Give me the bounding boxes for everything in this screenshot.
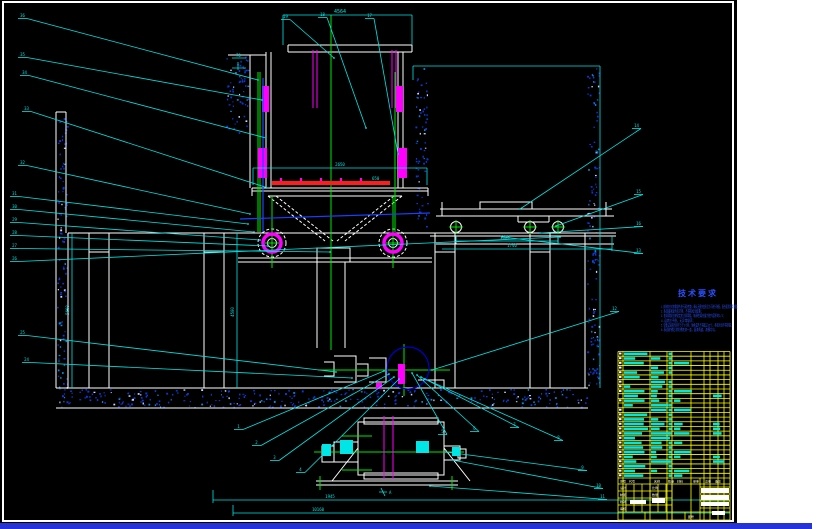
bom-seq-mark <box>619 381 622 383</box>
bom-seq-mark <box>619 362 622 364</box>
bom-material-text <box>674 427 680 430</box>
hatch-dot <box>243 91 244 92</box>
hatch-dot <box>142 400 144 402</box>
hatch-dot <box>226 396 227 397</box>
hatch-dot <box>63 241 65 243</box>
hatch-dot <box>62 241 63 243</box>
hatch-dot <box>110 389 112 390</box>
hatch-dot <box>417 93 419 95</box>
hatch-dot <box>237 99 239 101</box>
hatch-dot <box>86 396 88 397</box>
hatch-dot <box>331 401 333 402</box>
bottom-edge-bar <box>0 523 812 529</box>
hatch-dot <box>64 143 65 144</box>
hatch-dot <box>60 154 61 156</box>
hatch-dot <box>99 393 101 395</box>
hatch-dot <box>118 406 119 407</box>
bom-seq-mark <box>619 413 622 415</box>
hatch-dot <box>280 405 281 407</box>
hatch-dot <box>566 397 568 398</box>
dim-trolley: 2650 <box>335 162 345 167</box>
callout-label: 29 <box>12 217 17 222</box>
bom-code-text <box>624 442 642 445</box>
hatch-dot <box>426 161 427 163</box>
callout-target-dot <box>265 137 267 139</box>
bom-qty-text <box>669 460 672 463</box>
hatch-dot <box>481 391 483 392</box>
hatch-dot <box>244 78 245 79</box>
hatch-dot <box>166 393 168 395</box>
callout-target-dot <box>559 236 561 238</box>
bom-qty-text <box>669 399 672 402</box>
hatch-dot <box>408 390 410 391</box>
bom-code-text <box>624 470 635 473</box>
hatch-dot <box>492 404 494 405</box>
callout-target-dot <box>539 232 541 234</box>
hatch-dot <box>522 398 523 400</box>
hatch-dot <box>202 396 203 398</box>
hatch-dot <box>398 393 400 394</box>
hatch-dot <box>60 346 61 348</box>
bom-seq-mark <box>619 446 622 448</box>
hatch-dot <box>57 219 59 220</box>
hatch-dot <box>327 398 328 399</box>
hatch-dot <box>422 205 424 206</box>
hatch-dot <box>506 401 507 403</box>
hatch-dot <box>366 393 367 394</box>
hatch-dot <box>246 60 247 62</box>
hatch-dot <box>426 83 427 84</box>
hatch-dot <box>538 401 540 403</box>
bom-code-text <box>624 376 640 379</box>
hatch-dot <box>270 395 271 397</box>
hatch-dot <box>62 283 64 285</box>
bom-material-text <box>674 432 690 435</box>
hatch-dot <box>596 112 598 114</box>
hatch-dot <box>597 99 599 100</box>
hatch-dot <box>184 396 185 397</box>
hatch-dot <box>597 344 598 346</box>
hatch-dot <box>128 404 130 405</box>
hatch-dot <box>239 394 241 396</box>
hatch-dot <box>590 95 592 97</box>
hatch-dot <box>225 390 227 392</box>
hatch-dot <box>588 169 590 171</box>
bom-code-text <box>624 460 636 463</box>
hatch-dot <box>113 404 115 406</box>
hatch-dot <box>219 400 221 401</box>
hatch-dot <box>424 129 426 131</box>
bom-code-text <box>624 437 635 440</box>
hatch-dot <box>589 308 590 310</box>
bom-qty-text <box>669 470 672 473</box>
hatch-dot <box>592 344 594 345</box>
bom-header-cell: 单重 <box>693 479 699 484</box>
hatch-dot <box>418 176 419 177</box>
hatch-dot <box>222 396 223 398</box>
callout-label: 15 <box>636 189 641 194</box>
hatch-dot <box>120 404 122 405</box>
hatch-dot <box>159 400 161 402</box>
hatch-dot <box>492 397 493 398</box>
hatch-dot <box>566 389 568 390</box>
hatch-dot <box>134 393 135 394</box>
hatch-dot <box>350 399 352 400</box>
hatch-dot <box>345 393 346 394</box>
hatch-dot <box>507 400 509 402</box>
bom-qty-text <box>669 423 672 426</box>
hatch-dot <box>425 142 426 144</box>
hatch-dot <box>394 396 396 397</box>
hatch-dot <box>415 127 417 129</box>
hatch-dot <box>586 398 587 399</box>
hatch-dot <box>323 405 325 406</box>
hatch-dot <box>596 271 597 273</box>
hatch-dot <box>426 107 427 109</box>
hatch-dot <box>594 332 595 333</box>
hatch-dot <box>424 218 426 220</box>
hatch-dot <box>524 396 525 398</box>
bom-material-text <box>674 456 680 459</box>
hatch-dot <box>62 395 64 397</box>
bom-name-text <box>651 442 662 445</box>
hatch-dot <box>210 406 211 407</box>
bom-qty-text <box>669 385 672 388</box>
hatch-dot <box>189 406 190 407</box>
hatch-dot <box>60 294 62 295</box>
bom-seq-mark <box>619 357 622 359</box>
hatch-dot <box>594 311 596 312</box>
hatch-dot <box>61 214 63 215</box>
hatch-dot <box>407 405 409 407</box>
hatch-dot <box>292 404 293 406</box>
hatch-dot <box>223 407 224 408</box>
hatch-dot <box>128 393 130 395</box>
hatch-dot <box>592 74 593 76</box>
hatch-dot <box>230 90 232 92</box>
callout-label: 24 <box>24 357 29 362</box>
bom-remark-text <box>713 460 724 463</box>
hatch-dot <box>271 390 273 391</box>
hatch-dot <box>58 143 60 144</box>
hatch-dot <box>545 389 547 391</box>
hatch-dot <box>364 391 365 393</box>
hatch-dot <box>65 263 66 265</box>
hatch-dot <box>238 405 240 406</box>
hatch-dot <box>420 212 422 213</box>
bom-code-text <box>624 446 643 449</box>
hatch-dot <box>221 391 222 392</box>
hatch-dot <box>237 403 238 404</box>
bom-code-text <box>624 399 645 402</box>
hatch-dot <box>587 230 589 231</box>
hatch-dot <box>64 358 66 360</box>
hatch-dot <box>247 105 248 107</box>
hatch-dot <box>589 238 591 240</box>
hatch-dot <box>247 99 248 101</box>
hatch-dot <box>314 396 315 397</box>
hatch-dot <box>149 404 151 406</box>
hatch-dot <box>239 76 240 78</box>
hatch-dot <box>89 396 90 398</box>
hatch-dot <box>578 402 580 403</box>
bom-qty-text <box>669 413 672 416</box>
hatch-dot <box>63 168 64 170</box>
hatch-dot <box>57 307 59 309</box>
hatch-dot <box>231 97 232 99</box>
hatch-dot <box>514 389 515 391</box>
hatch-dot <box>243 66 244 68</box>
callout-target-dot <box>424 378 426 380</box>
hatch-dot <box>64 148 66 149</box>
hatch-dot <box>155 390 157 392</box>
callout-target-dot <box>365 127 367 129</box>
hatch-dot <box>291 402 292 403</box>
hatch-dot <box>493 403 494 404</box>
bom-name-text <box>651 437 670 440</box>
bom-seq-mark <box>619 409 622 411</box>
hatch-dot <box>417 78 419 80</box>
hatch-dot <box>596 68 597 69</box>
bom-name-text <box>651 357 660 360</box>
hatch-dot <box>321 399 323 401</box>
hatch-dot <box>420 112 421 114</box>
callout-target-dot <box>420 376 422 378</box>
bom-material-text <box>674 442 682 445</box>
callout-target-dot <box>257 79 259 81</box>
hatch-dot <box>334 400 335 402</box>
hatch-dot <box>421 84 423 86</box>
hatch-dot <box>593 337 594 338</box>
hatch-dot <box>595 104 596 106</box>
hatch-dot <box>129 405 131 407</box>
hatch-dot <box>186 394 188 396</box>
hatch-dot <box>64 365 65 367</box>
hatch-dot <box>598 264 599 266</box>
hatch-dot <box>250 400 252 402</box>
hatch-dot <box>211 404 212 405</box>
hatch-dot <box>228 95 229 96</box>
hatch-dot <box>377 396 379 398</box>
hatch-dot <box>416 161 418 162</box>
callout-target-dot <box>416 374 418 376</box>
hatch-dot <box>293 392 295 394</box>
hatch-dot <box>549 399 551 401</box>
hatch-dot <box>233 87 234 88</box>
hatch-dot <box>207 402 208 404</box>
hatch-dot <box>474 397 476 398</box>
hatch-dot <box>336 399 338 400</box>
callout-target-dot <box>445 451 447 453</box>
hatch-dot <box>423 163 425 165</box>
callout-label: 32 <box>20 160 25 165</box>
hatch-dot <box>418 169 420 170</box>
callout-label: 11 <box>600 494 605 499</box>
hatch-dot <box>596 259 597 260</box>
hatch-dot <box>60 292 62 294</box>
bom-remark-text <box>713 423 720 426</box>
hatch-dot <box>229 397 230 399</box>
hatch-dot <box>61 321 62 323</box>
hatch-dot <box>589 144 591 145</box>
bom-seq-mark <box>619 418 622 420</box>
hatch-dot <box>440 389 442 391</box>
bom-qty-text <box>669 442 672 445</box>
hatch-dot <box>284 405 285 407</box>
hatch-dot <box>596 192 598 193</box>
hatch-dot <box>65 331 66 332</box>
callout-target-dot <box>451 459 453 461</box>
hatch-dot <box>172 394 173 396</box>
bom-qty-text <box>669 446 672 449</box>
hatch-dot <box>364 406 365 408</box>
bom-header-cell: 名称 <box>654 479 660 484</box>
hatch-dot <box>504 392 506 393</box>
hatch-dot <box>95 397 97 398</box>
hatch-dot <box>62 139 63 141</box>
hatch-dot <box>424 133 426 134</box>
hatch-dot <box>242 81 244 83</box>
hatch-dot <box>82 390 83 392</box>
hatch-dot <box>591 146 593 148</box>
hatch-dot <box>409 392 410 393</box>
hatch-dot <box>240 101 242 103</box>
cad-drawing: 4564 2650 650 1125 1740 1945 10160 5600 … <box>0 0 819 529</box>
hatch-dot <box>234 403 235 404</box>
hatch-dot <box>119 399 121 401</box>
hatch-dot <box>184 389 186 390</box>
hatch-dot <box>597 368 599 370</box>
callout-label: 12 <box>612 306 617 311</box>
hatch-dot <box>528 389 529 391</box>
bom-seq-mark <box>619 470 622 472</box>
bom-seq-mark <box>619 367 622 369</box>
hatch-dot <box>503 400 504 402</box>
callout-target-dot <box>247 223 249 225</box>
hatch-dot <box>63 401 64 403</box>
hatch-dot <box>510 389 512 390</box>
hatch-dot <box>155 404 156 406</box>
callout-target-dot <box>397 153 399 155</box>
hatch-dot <box>533 401 535 403</box>
hatch-dot <box>392 391 394 392</box>
bom-seq-mark <box>619 399 622 401</box>
hatch-dot <box>598 86 599 88</box>
hatch-dot <box>529 395 531 396</box>
bom-qty-text <box>669 418 672 421</box>
bom-name-text <box>651 390 658 393</box>
hatch-dot <box>596 151 598 152</box>
hatch-dot <box>233 106 234 108</box>
hatch-dot <box>329 399 331 400</box>
hatch-dot <box>596 186 597 187</box>
bom-seq-mark <box>619 451 622 453</box>
hatch-dot <box>471 397 473 399</box>
hatch-dot <box>596 372 598 374</box>
bom-qty-text <box>669 465 672 468</box>
hatch-dot <box>290 396 291 397</box>
hatch-dot <box>357 399 359 400</box>
hatch-dot <box>64 389 65 390</box>
hatch-dot <box>239 116 241 118</box>
hatch-dot <box>227 99 228 101</box>
callout-label: 10 <box>596 483 601 488</box>
bom-code-text <box>624 395 638 398</box>
bom-qty-text <box>669 451 672 454</box>
callout-label: 26 <box>12 256 17 261</box>
dim-pit-mid: 4500 <box>230 307 235 317</box>
hatch-dot <box>595 175 597 176</box>
hatch-dot <box>416 400 417 401</box>
hatch-dot <box>348 390 350 391</box>
hatch-dot <box>63 335 65 337</box>
hatch-dot <box>491 406 492 407</box>
hatch-dot <box>244 80 245 82</box>
hatch-dot <box>230 403 232 405</box>
bom-name-text <box>651 456 657 459</box>
hatch-dot <box>425 122 426 124</box>
hatch-dot <box>593 127 595 128</box>
hatch-dot <box>596 278 598 279</box>
bom-qty-text <box>669 432 672 435</box>
callout-label: 28 <box>12 230 17 235</box>
callout-label: 17 <box>367 13 372 18</box>
hatch-dot <box>270 405 271 406</box>
hatch-dot <box>388 396 390 397</box>
hatch-dot <box>595 340 596 342</box>
hatch-dot <box>87 391 89 393</box>
bom-code-text <box>624 404 633 407</box>
hatch-dot <box>232 118 233 119</box>
bom-remark-text <box>713 456 720 459</box>
callout-target-dot <box>351 377 353 379</box>
hatch-dot <box>417 80 418 81</box>
hatch-dot <box>248 70 250 71</box>
hatch-dot <box>131 404 133 406</box>
bom-header-cell: 备注 <box>715 479 721 484</box>
hatch-dot <box>242 79 243 80</box>
hatch-dot <box>402 396 403 397</box>
hatch-dot <box>245 395 246 396</box>
titleblock-label: 数量 <box>652 492 658 497</box>
hatch-dot <box>585 402 586 404</box>
bom-name-text <box>651 423 665 426</box>
hatch-dot <box>294 395 295 396</box>
bom-remark-text <box>713 427 720 430</box>
bom-qty-text <box>669 371 672 374</box>
bom-name-text <box>651 371 664 374</box>
hatch-dot <box>419 109 421 111</box>
hatch-dot <box>65 290 66 292</box>
bom-code-text <box>624 362 644 365</box>
hatch-dot <box>240 65 242 67</box>
hatch-dot <box>592 254 593 256</box>
hatch-dot <box>591 331 592 333</box>
hatch-dot <box>176 390 178 391</box>
bom-name-text <box>651 367 658 370</box>
hatch-dot <box>129 395 131 397</box>
hatch-dot <box>423 156 424 158</box>
hatch-dot <box>230 82 231 83</box>
hatch-dot <box>234 128 235 129</box>
hatch-dot <box>58 289 59 290</box>
hatch-dot <box>426 91 428 93</box>
hatch-dot <box>595 176 596 177</box>
hatch-dot <box>298 401 299 403</box>
hatch-dot <box>58 279 60 281</box>
hatch-dot <box>232 101 233 102</box>
hatch-dot <box>597 376 598 378</box>
